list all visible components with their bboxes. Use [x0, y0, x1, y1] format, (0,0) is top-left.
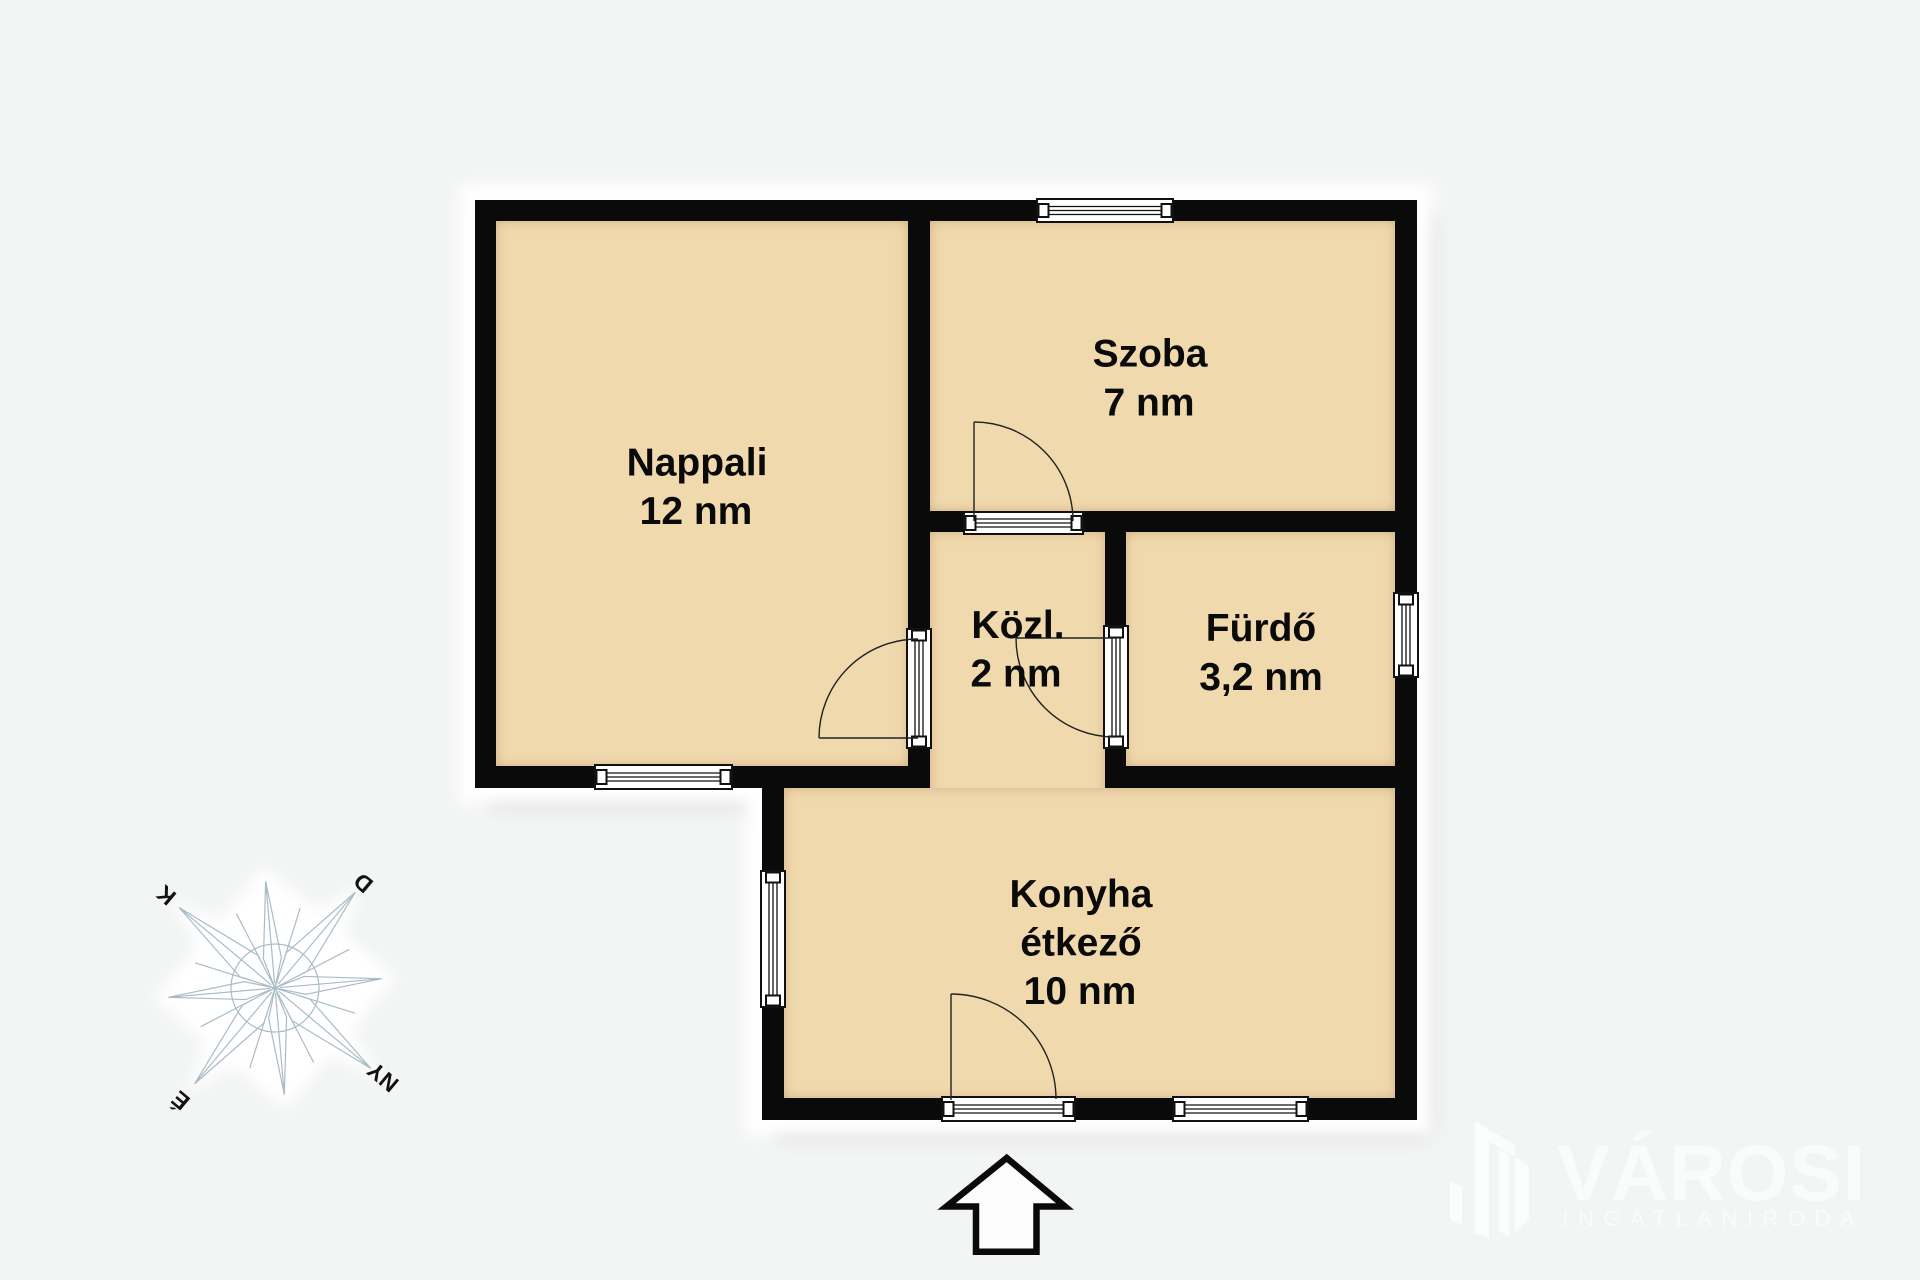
svg-text:Szoba: Szoba	[1093, 333, 1208, 376]
svg-text:7 nm: 7 nm	[1103, 382, 1194, 425]
svg-text:12 nm: 12 nm	[640, 490, 753, 533]
svg-text:Fürdő: Fürdő	[1206, 607, 1316, 650]
svg-text:Konyha: Konyha	[1009, 873, 1152, 916]
svg-text:Nappali: Nappali	[627, 442, 768, 485]
svg-text:3,2 nm: 3,2 nm	[1199, 656, 1323, 699]
svg-text:étkező: étkező	[1020, 922, 1141, 965]
svg-text:10 nm: 10 nm	[1024, 970, 1137, 1013]
svg-text:2 nm: 2 nm	[970, 653, 1061, 696]
svg-text:INGATLANIRODA: INGATLANIRODA	[1562, 1206, 1864, 1231]
svg-text:VÁROSI: VÁROSI	[1557, 1128, 1866, 1217]
svg-text:Közl.: Közl.	[971, 604, 1064, 647]
